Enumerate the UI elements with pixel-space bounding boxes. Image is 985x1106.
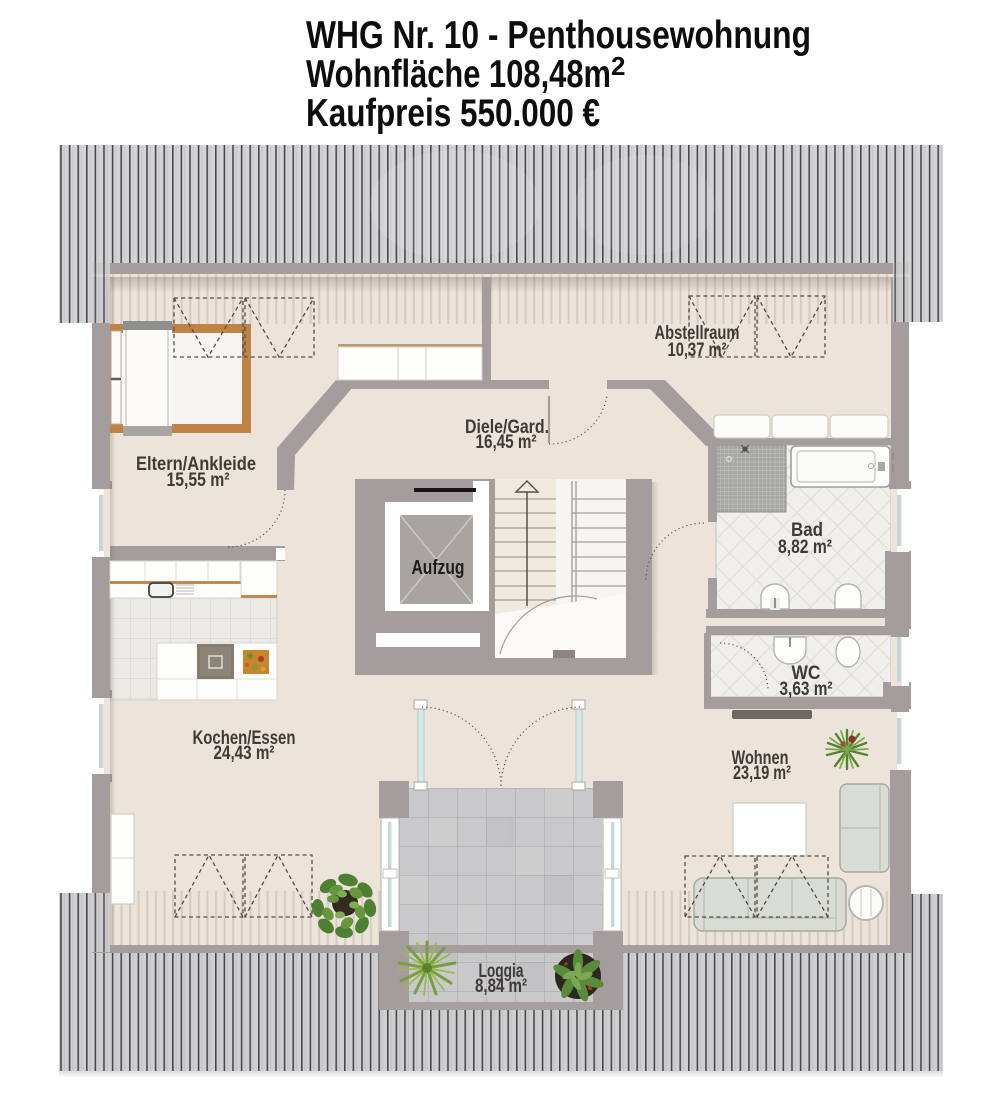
svg-text:3,63 m²: 3,63 m² — [780, 679, 833, 700]
svg-text:8,84 m²: 8,84 m² — [475, 976, 527, 997]
svg-text:16,45 m²: 16,45 m² — [476, 432, 537, 453]
svg-text:Wohnfläche 108,48m2: Wohnfläche 108,48m2 — [306, 51, 625, 96]
svg-text:24,43 m²: 24,43 m² — [214, 743, 275, 764]
svg-text:15,55 m²: 15,55 m² — [167, 470, 230, 491]
svg-text:Kaufpreis 550.000 €: Kaufpreis 550.000 € — [306, 92, 600, 135]
svg-text:WHG Nr. 10 - Penthousewohnung: WHG Nr. 10 - Penthousewohnung — [306, 14, 811, 57]
svg-text:Aufzug: Aufzug — [412, 557, 465, 579]
svg-text:8,82 m²: 8,82 m² — [778, 537, 832, 558]
svg-text:23,19 m²: 23,19 m² — [733, 763, 791, 784]
svg-text:10,37 m²: 10,37 m² — [668, 340, 727, 361]
